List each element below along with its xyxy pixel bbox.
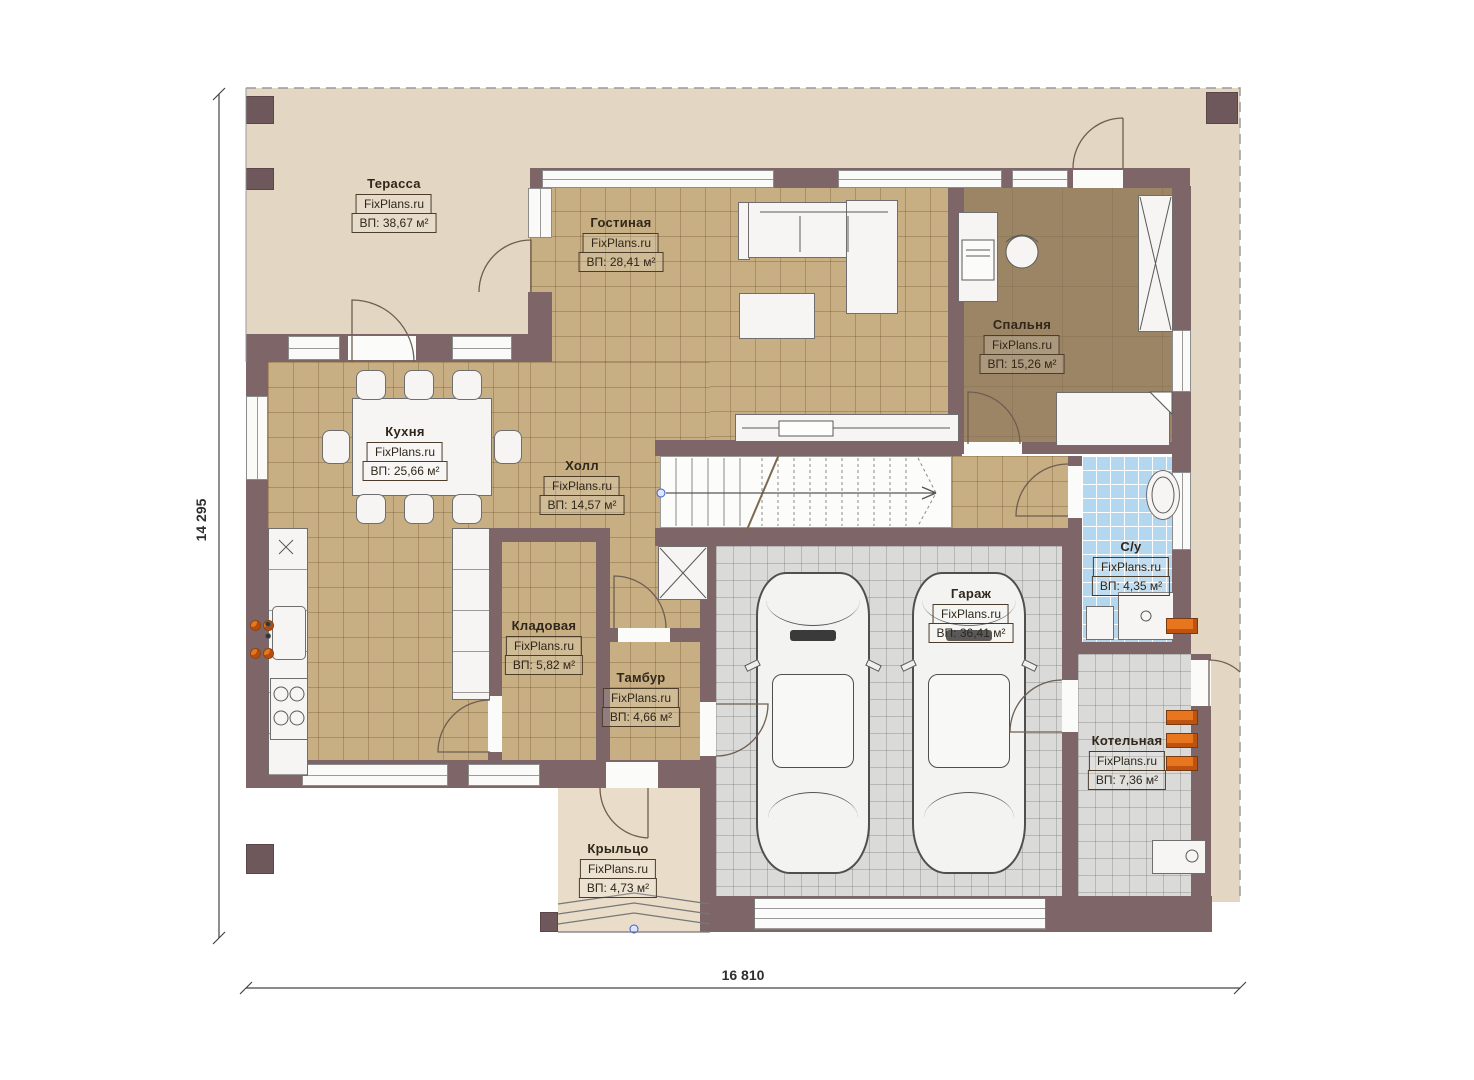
dining-chair — [494, 430, 522, 464]
site-top-band — [530, 88, 1240, 168]
radiator — [1166, 618, 1198, 634]
column-post — [1206, 92, 1238, 124]
window — [542, 170, 774, 188]
column-post — [246, 96, 274, 124]
room-area: ВП: 7,36 м² — [1088, 770, 1166, 790]
car-hood-line — [766, 600, 860, 626]
dining-chair — [356, 494, 386, 524]
wall — [655, 440, 962, 456]
room-name: Спальня — [980, 317, 1065, 332]
wardrobe — [1138, 195, 1173, 332]
room-name: Гараж — [929, 586, 1014, 601]
room-label-vestibule: Тамбур FixPlans.ru ВП: 4,66 м² — [602, 670, 680, 727]
door-opening — [488, 696, 502, 752]
wall — [528, 292, 552, 362]
room-label-hall: Холл FixPlans.ru ВП: 14,57 м² — [540, 458, 625, 515]
car-rear-window-line — [924, 792, 1014, 818]
window — [246, 396, 268, 480]
car — [756, 572, 870, 874]
room-name: Котельная — [1088, 733, 1166, 748]
door-opening — [606, 762, 658, 788]
dining-chair — [356, 370, 386, 400]
dining-chair — [452, 370, 482, 400]
brand-watermark: FixPlans.ru — [984, 335, 1060, 355]
desk — [958, 212, 998, 302]
wall — [1068, 642, 1191, 654]
staircase — [660, 456, 952, 528]
heater-dot — [250, 620, 261, 631]
brand-watermark: FixPlans.ru — [580, 859, 656, 879]
car-cabin — [928, 674, 1010, 768]
door-opening — [348, 336, 416, 360]
brand-watermark: FixPlans.ru — [933, 604, 1009, 624]
wall — [655, 528, 1080, 546]
room-label-bathroom: С/у FixPlans.ru ВП: 4,35 м² — [1092, 539, 1170, 596]
door-opening — [1062, 680, 1078, 732]
car-rear-window-line — [768, 792, 858, 818]
room-area: ВП: 25,66 м² — [363, 461, 448, 481]
door-opening — [1073, 170, 1123, 188]
brand-watermark: FixPlans.ru — [367, 442, 443, 462]
room-area: ВП: 15,26 м² — [980, 354, 1065, 374]
window — [528, 188, 552, 238]
closet — [658, 546, 708, 600]
door-opening — [700, 702, 716, 756]
brand-watermark: FixPlans.ru — [544, 476, 620, 496]
room-label-kitchen: Кухня FixPlans.ru ВП: 25,66 м² — [363, 424, 448, 481]
room-name: Кладовая — [505, 618, 583, 633]
coffee-table — [739, 293, 815, 339]
window — [288, 336, 340, 360]
wall — [488, 528, 610, 542]
brand-watermark: FixPlans.ru — [583, 233, 659, 253]
bathroom-sink — [1146, 470, 1180, 520]
bed — [1056, 392, 1170, 446]
sofa-chaise — [846, 200, 898, 314]
window — [452, 336, 512, 360]
room-name: Терасса — [352, 176, 437, 191]
room-area: ВП: 38,67 м² — [352, 213, 437, 233]
room-name: Холл — [540, 458, 625, 473]
radiator — [1166, 756, 1198, 771]
heater-dot — [263, 648, 274, 659]
tv-stand — [735, 414, 959, 442]
room-area: ВП: 14,57 м² — [540, 495, 625, 515]
brand-watermark: FixPlans.ru — [1093, 557, 1169, 577]
dining-chair — [452, 494, 482, 524]
room-name: Тамбур — [602, 670, 680, 685]
column-post — [246, 844, 274, 874]
garage-door — [754, 898, 1046, 930]
column-post — [246, 168, 274, 190]
room-area: ВП: 28,41 м² — [579, 252, 664, 272]
window — [468, 764, 540, 786]
room-label-boiler: Котельная FixPlans.ru ВП: 7,36 м² — [1088, 733, 1166, 790]
corridor-floor — [952, 456, 1068, 528]
brand-watermark: FixPlans.ru — [506, 636, 582, 656]
radiator — [1166, 710, 1198, 725]
door-opening — [1191, 660, 1211, 706]
door-opening — [1068, 466, 1082, 518]
brand-watermark: FixPlans.ru — [1089, 751, 1165, 771]
room-area: ВП: 4,35 м² — [1092, 576, 1170, 596]
boiler-bench — [1152, 840, 1206, 874]
heater-dot — [263, 620, 274, 631]
dining-chair — [404, 494, 434, 524]
window — [1012, 170, 1068, 188]
room-area: ВП: 5,82 м² — [505, 655, 583, 675]
door-opening — [618, 628, 670, 642]
room-area: ВП: 36,41 м² — [929, 623, 1014, 643]
window — [1172, 330, 1191, 392]
dimension-width-label: 16 810 — [722, 967, 765, 983]
kitchen-counter — [452, 528, 490, 700]
room-label-living: Гостиная FixPlans.ru ВП: 28,41 м² — [579, 215, 664, 272]
room-label-terrace: Терасса FixPlans.ru ВП: 38,67 м² — [352, 176, 437, 233]
door-opening — [964, 442, 1022, 454]
room-label-garage: Гараж FixPlans.ru ВП: 36,41 м² — [929, 586, 1014, 643]
car-cabin — [772, 674, 854, 768]
washing-machine — [1086, 606, 1114, 640]
room-name: Кухня — [363, 424, 448, 439]
window — [838, 170, 1002, 188]
brand-watermark: FixPlans.ru — [356, 194, 432, 214]
room-label-storage: Кладовая FixPlans.ru ВП: 5,82 м² — [505, 618, 583, 675]
brand-watermark: FixPlans.ru — [603, 688, 679, 708]
car-sunroof — [790, 630, 836, 641]
dimension-height-label: 14 295 — [193, 498, 209, 541]
room-name: Крыльцо — [579, 841, 657, 856]
room-name: С/у — [1092, 539, 1170, 554]
column-post — [540, 912, 558, 932]
room-label-bedroom: Спальня FixPlans.ru ВП: 15,26 м² — [980, 317, 1065, 374]
dining-chair — [404, 370, 434, 400]
wall — [1172, 186, 1191, 654]
floor-plan-canvas: 14 295 16 810 Терасса FixPlans.ru ВП: 38… — [0, 0, 1474, 1080]
window — [302, 764, 448, 786]
room-area: ВП: 4,66 м² — [602, 707, 680, 727]
stove-hob — [270, 678, 308, 740]
radiator — [1166, 733, 1198, 748]
room-name: Гостиная — [579, 215, 664, 230]
heater-dot — [250, 648, 261, 659]
room-label-porch: Крыльцо FixPlans.ru ВП: 4,73 м² — [579, 841, 657, 898]
room-area: ВП: 4,73 м² — [579, 878, 657, 898]
dining-chair — [322, 430, 350, 464]
kitchen-sink — [272, 606, 306, 660]
